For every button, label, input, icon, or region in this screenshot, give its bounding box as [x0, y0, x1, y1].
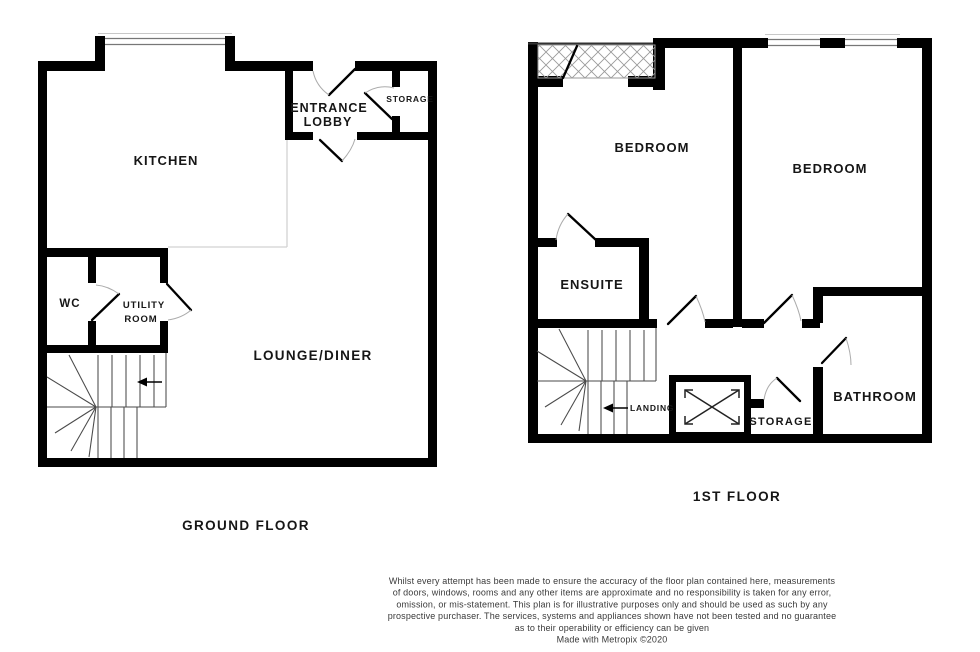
- disclaimer-line: prospective purchaser. The services, sys…: [388, 611, 837, 621]
- gf-wc-door: [92, 285, 119, 320]
- ff-rooflight-symbol: [669, 375, 751, 439]
- ff-landing-label: LANDING: [630, 403, 674, 413]
- ff-ensuite-door: [556, 214, 596, 240]
- ff-bedroom-left-door: [668, 296, 705, 324]
- gf-wc-label: WC: [59, 298, 80, 310]
- disclaimer-line: Whilst every attempt has been made to en…: [389, 576, 836, 586]
- gf-entrance-label: ENTRANCE: [290, 101, 367, 115]
- gf-lounge-diner-label: LOUNGE/DINER: [253, 348, 372, 363]
- gf-stairs: [47, 353, 166, 458]
- ff-storage-door: [764, 378, 800, 401]
- gf-storage-label: STORAGE: [386, 94, 433, 104]
- ff-stairs: [537, 328, 656, 434]
- gf-stairs-direction-arrow-icon: [137, 378, 162, 387]
- gf-front-door: [313, 69, 355, 95]
- floorplan-page: KITCHEN ENTRANCE LOBBY STORAGE WC UTILIT…: [0, 0, 980, 652]
- ff-eaves-hatched-area: [538, 45, 655, 78]
- disclaimer-line: omission, or mis-statement. This plan is…: [396, 599, 828, 609]
- ground-floor-plan: KITCHEN ENTRANCE LOBBY STORAGE WC UTILIT…: [38, 34, 437, 534]
- ff-ensuite-label: ENSUITE: [560, 277, 623, 292]
- gf-lobby-to-lounge-door: [320, 139, 355, 161]
- ff-bathroom-label: BATHROOM: [833, 389, 917, 404]
- first-floor-plan: BEDROOM BEDROOM ENSUITE LANDING STORAGE …: [528, 35, 932, 505]
- gf-utility-label: UTILITY: [123, 300, 165, 311]
- gf-kitchen-label: KITCHEN: [134, 153, 199, 168]
- ground-floor-title: GROUND FLOOR: [182, 518, 310, 533]
- gf-lobby-label: LOBBY: [304, 115, 353, 129]
- ff-stairs-direction-arrow-icon: [603, 404, 628, 413]
- floorplan-drawing: KITCHEN ENTRANCE LOBBY STORAGE WC UTILIT…: [0, 0, 980, 652]
- disclaimer-line: of doors, windows, rooms and any other i…: [393, 588, 832, 598]
- disclaimer-block: Whilst every attempt has been made to en…: [388, 576, 837, 645]
- gf-utility-room-label: ROOM: [124, 314, 157, 325]
- ff-bedroom-right-label: BEDROOM: [793, 161, 868, 176]
- disclaimer-line: as to their operability or efficiency ca…: [515, 623, 709, 633]
- ff-storage-label: STORAGE: [749, 416, 812, 428]
- ff-bathroom-door: [822, 338, 851, 365]
- gf-bay-window: [98, 34, 232, 45]
- ff-bedroom-left-label: BEDROOM: [615, 140, 690, 155]
- metropix-credit: Made with Metropix ©2020: [557, 635, 668, 645]
- ff-bedroom-right-door: [764, 295, 801, 323]
- first-floor-title: 1ST FLOOR: [693, 489, 781, 504]
- gf-utility-door: [167, 284, 191, 320]
